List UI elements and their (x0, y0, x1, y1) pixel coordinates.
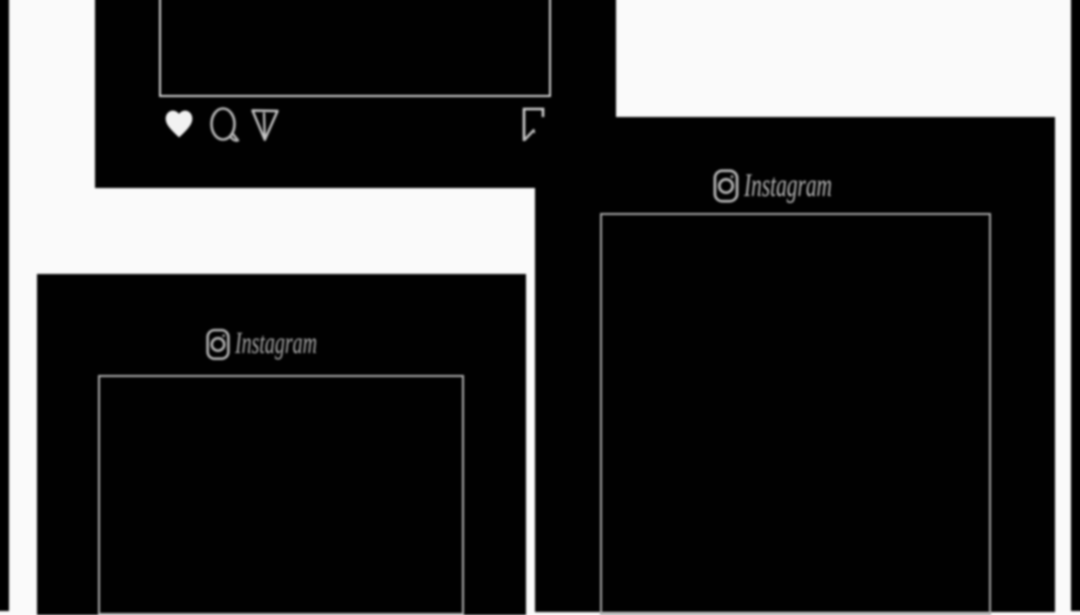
svg-text:Instagram: Instagram (744, 168, 832, 204)
svg-text:Instagram: Instagram (235, 325, 317, 360)
